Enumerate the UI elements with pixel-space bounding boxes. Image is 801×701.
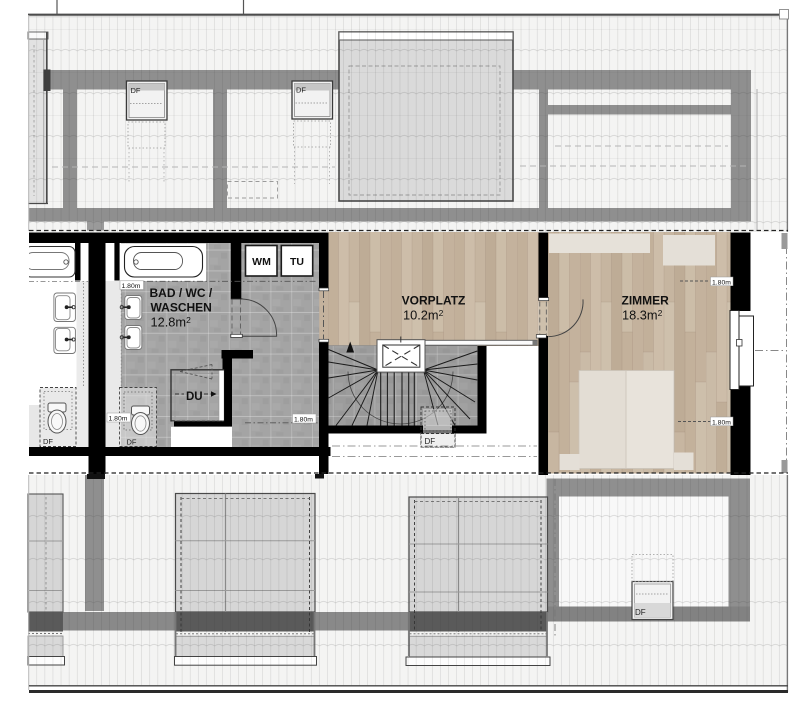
svg-text:DF: DF — [635, 608, 646, 617]
svg-text:ZIMMER: ZIMMER — [622, 294, 670, 308]
svg-text:WASCHEN: WASCHEN — [151, 301, 212, 315]
svg-text:DU: DU — [186, 391, 203, 403]
svg-text:WM: WM — [252, 256, 271, 268]
svg-text:DF: DF — [296, 86, 306, 95]
svg-text:DF: DF — [127, 438, 137, 447]
svg-text:VORPLATZ: VORPLATZ — [402, 294, 466, 308]
svg-text:12.8m2: 12.8m2 — [151, 315, 192, 330]
svg-text:1.80m: 1.80m — [712, 279, 731, 286]
svg-text:DF: DF — [131, 86, 141, 95]
svg-text:1.80m: 1.80m — [294, 417, 313, 424]
svg-text:18.3m2: 18.3m2 — [622, 308, 663, 323]
svg-text:DF: DF — [43, 437, 53, 446]
svg-text:1.80m: 1.80m — [712, 419, 731, 426]
svg-text:1.80m: 1.80m — [122, 283, 141, 290]
svg-text:TU: TU — [290, 256, 304, 268]
svg-text:BAD / WC /: BAD / WC / — [150, 286, 213, 300]
svg-text:DF: DF — [425, 437, 436, 446]
svg-text:10.2m2: 10.2m2 — [403, 308, 444, 323]
svg-text:1.80m: 1.80m — [109, 416, 128, 423]
